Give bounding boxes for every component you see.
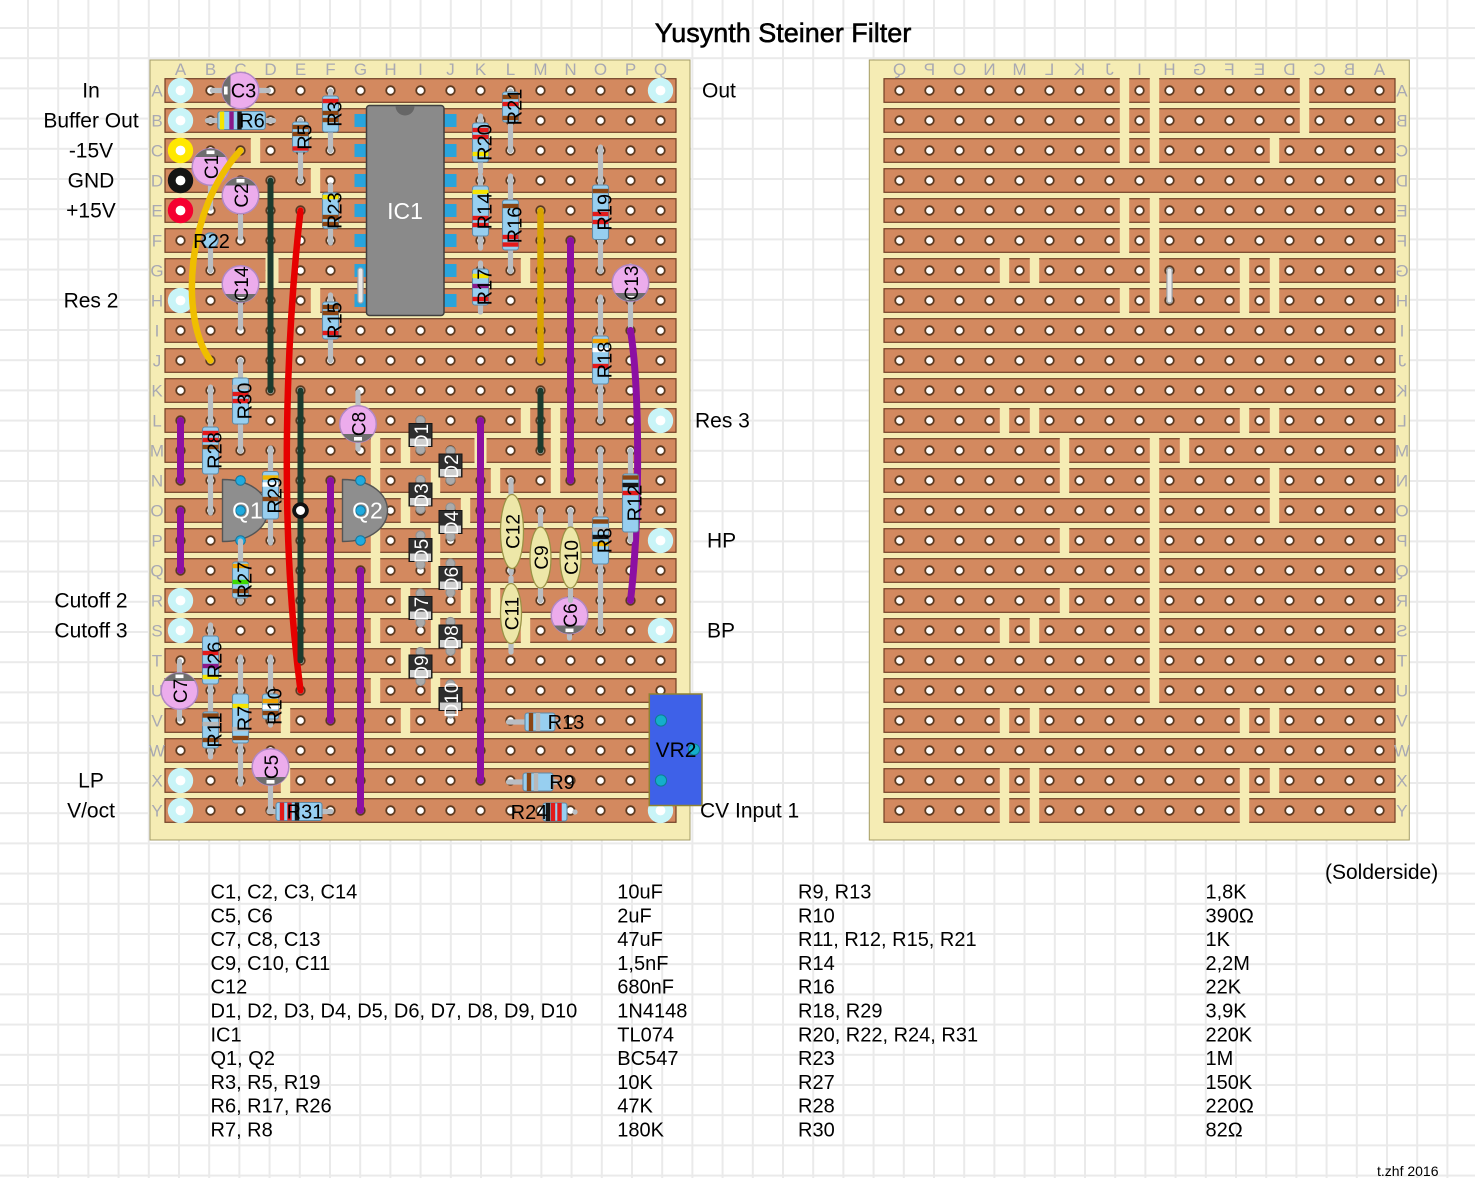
svg-text:Q1: Q1 xyxy=(232,498,263,524)
svg-text:R: R xyxy=(151,592,163,611)
svg-text:L: L xyxy=(1045,60,1054,79)
svg-text:C8: C8 xyxy=(350,412,371,436)
svg-text:C: C xyxy=(1313,60,1325,79)
svg-text:R14: R14 xyxy=(798,953,835,975)
svg-text:S: S xyxy=(151,622,162,641)
svg-text:R9: R9 xyxy=(549,772,575,794)
svg-text:F: F xyxy=(152,232,162,251)
svg-text:R9, R13: R9, R13 xyxy=(798,882,871,904)
svg-text:R3, R5, R19: R3, R5, R19 xyxy=(211,1072,321,1094)
svg-text:220K: 220K xyxy=(1206,1024,1253,1046)
svg-text:Cutoff 2: Cutoff 2 xyxy=(54,590,127,613)
svg-text:10K: 10K xyxy=(617,1072,653,1094)
svg-text:I: I xyxy=(418,60,423,79)
svg-text:X: X xyxy=(1396,772,1407,791)
svg-text:P: P xyxy=(151,532,162,551)
svg-text:R24: R24 xyxy=(511,802,548,824)
svg-text:2uF: 2uF xyxy=(617,905,651,927)
svg-text:A: A xyxy=(151,82,163,101)
svg-text:W: W xyxy=(1394,742,1410,761)
svg-text:2,2M: 2,2M xyxy=(1206,953,1250,975)
svg-text:R27: R27 xyxy=(235,562,257,599)
svg-text:R30: R30 xyxy=(798,1120,835,1142)
svg-text:82Ω: 82Ω xyxy=(1206,1120,1243,1142)
svg-text:N: N xyxy=(983,60,995,79)
svg-text:D6: D6 xyxy=(442,567,463,591)
svg-text:1,8K: 1,8K xyxy=(1206,882,1248,904)
svg-text:IC1: IC1 xyxy=(387,198,423,224)
svg-text:Buffer Out: Buffer Out xyxy=(43,110,138,133)
svg-text:R30: R30 xyxy=(235,383,257,420)
svg-text:H: H xyxy=(1163,60,1175,79)
svg-text:LP: LP xyxy=(78,770,104,793)
svg-text:E: E xyxy=(1396,202,1407,221)
svg-text:D1, D2, D3, D4, D5, D6, D7, D8: D1, D2, D3, D4, D5, D6, D7, D8, D9, D10 xyxy=(211,1001,578,1023)
svg-text:D: D xyxy=(264,60,276,79)
svg-text:N: N xyxy=(151,472,163,491)
svg-text:D3: D3 xyxy=(412,483,433,507)
svg-text:O: O xyxy=(594,60,607,79)
svg-text:D: D xyxy=(151,172,163,191)
svg-text:R29: R29 xyxy=(265,477,287,514)
svg-text:C2: C2 xyxy=(232,183,253,207)
svg-text:A: A xyxy=(1396,82,1408,101)
svg-text:R: R xyxy=(1396,592,1408,611)
svg-text:R27: R27 xyxy=(798,1072,835,1094)
svg-text:R5: R5 xyxy=(295,124,317,150)
svg-text:In: In xyxy=(82,80,100,103)
svg-text:G: G xyxy=(354,60,367,79)
svg-text:A: A xyxy=(1373,60,1385,79)
svg-text:10uF: 10uF xyxy=(617,882,663,904)
svg-text:150K: 150K xyxy=(1206,1072,1253,1094)
svg-text:Q: Q xyxy=(1395,562,1408,581)
svg-text:D4: D4 xyxy=(442,510,463,535)
svg-text:P: P xyxy=(625,60,636,79)
svg-text:S: S xyxy=(1396,622,1407,641)
svg-text:D5: D5 xyxy=(412,539,433,563)
svg-text:B: B xyxy=(205,60,216,79)
svg-text:C3: C3 xyxy=(231,81,257,103)
svg-text:C5: C5 xyxy=(262,755,283,779)
svg-text:C13: C13 xyxy=(622,266,643,301)
svg-text:C10: C10 xyxy=(562,540,583,575)
svg-text:R31: R31 xyxy=(287,802,324,824)
svg-text:t.zhf 2016: t.zhf 2016 xyxy=(1377,1163,1439,1178)
svg-text:BP: BP xyxy=(707,620,735,643)
svg-text:K: K xyxy=(475,60,487,79)
svg-text:J: J xyxy=(1398,352,1407,371)
svg-text:F: F xyxy=(1224,60,1234,79)
svg-text:C9: C9 xyxy=(532,545,553,569)
svg-text:(Solderside): (Solderside) xyxy=(1325,861,1438,884)
svg-text:C7: C7 xyxy=(171,679,192,703)
svg-text:E: E xyxy=(151,202,162,221)
svg-text:A: A xyxy=(175,60,187,79)
svg-text:H: H xyxy=(1396,292,1408,311)
svg-text:C1, C2, C3, C14: C1, C2, C3, C14 xyxy=(211,882,358,904)
svg-text:H: H xyxy=(151,292,163,311)
svg-text:G: G xyxy=(1193,60,1206,79)
svg-text:TL074: TL074 xyxy=(617,1024,674,1046)
svg-text:R22: R22 xyxy=(193,231,230,253)
svg-text:K: K xyxy=(1396,382,1408,401)
svg-text:47K: 47K xyxy=(617,1096,653,1118)
svg-text:W: W xyxy=(149,742,165,761)
svg-text:R23: R23 xyxy=(798,1048,835,1070)
svg-text:R28: R28 xyxy=(205,432,227,469)
svg-text:L: L xyxy=(1397,412,1406,431)
svg-text:M: M xyxy=(533,60,547,79)
svg-text:F: F xyxy=(1397,232,1407,251)
svg-text:I: I xyxy=(1137,60,1142,79)
svg-text:R18, R29: R18, R29 xyxy=(798,1001,883,1023)
svg-text:V/oct: V/oct xyxy=(67,800,115,823)
svg-text:C: C xyxy=(151,142,163,161)
svg-text:1K: 1K xyxy=(1206,929,1231,951)
svg-text:B: B xyxy=(1396,112,1407,131)
svg-text:T: T xyxy=(152,652,162,671)
svg-text:R7, R8: R7, R8 xyxy=(211,1120,273,1142)
svg-text:Q: Q xyxy=(150,562,163,581)
svg-text:K: K xyxy=(1073,60,1085,79)
svg-text:CV Input 1: CV Input 1 xyxy=(700,800,799,823)
svg-text:I: I xyxy=(155,322,160,341)
svg-text:C9, C10, C11: C9, C10, C11 xyxy=(211,953,331,975)
svg-text:R20: R20 xyxy=(475,124,497,161)
svg-text:Q: Q xyxy=(654,60,667,79)
svg-text:Cutoff 3: Cutoff 3 xyxy=(54,620,127,643)
svg-text:3,9K: 3,9K xyxy=(1206,1001,1248,1023)
svg-text:F: F xyxy=(325,60,335,79)
svg-text:R8: R8 xyxy=(595,528,617,554)
svg-text:V: V xyxy=(151,712,163,731)
svg-text:Res 2: Res 2 xyxy=(64,290,119,313)
svg-text:R7: R7 xyxy=(235,706,257,732)
svg-text:D1: D1 xyxy=(412,424,433,448)
svg-text:680nF: 680nF xyxy=(617,977,674,999)
svg-text:N: N xyxy=(1396,472,1408,491)
svg-text:T: T xyxy=(1397,652,1407,671)
svg-text:Y: Y xyxy=(151,802,162,821)
svg-text:R28: R28 xyxy=(798,1096,835,1118)
svg-text:R17: R17 xyxy=(475,269,497,306)
svg-text:1M: 1M xyxy=(1206,1048,1234,1070)
svg-text:R19: R19 xyxy=(595,194,617,231)
svg-text:E: E xyxy=(295,60,306,79)
svg-text:R18: R18 xyxy=(595,342,617,379)
svg-text:R20, R22, R24, R31: R20, R22, R24, R31 xyxy=(798,1024,978,1046)
svg-text:J: J xyxy=(153,352,162,371)
svg-text:C6: C6 xyxy=(561,603,582,627)
svg-text:H: H xyxy=(384,60,396,79)
svg-text:J: J xyxy=(1105,60,1114,79)
svg-text:C12: C12 xyxy=(211,977,248,999)
svg-text:D: D xyxy=(1283,60,1295,79)
svg-text:R3: R3 xyxy=(325,101,347,127)
svg-text:HP: HP xyxy=(707,530,736,553)
svg-text:Q1, Q2: Q1, Q2 xyxy=(211,1048,275,1070)
svg-text:R15: R15 xyxy=(325,302,347,339)
svg-text:1N4148: 1N4148 xyxy=(617,1001,687,1023)
svg-text:Q2: Q2 xyxy=(352,498,383,524)
svg-text:1,5nF: 1,5nF xyxy=(617,953,668,975)
svg-text:R10: R10 xyxy=(265,688,287,725)
svg-text:Res 3: Res 3 xyxy=(695,410,750,433)
svg-text:R6, R17, R26: R6, R17, R26 xyxy=(211,1096,332,1118)
svg-text:B: B xyxy=(1344,60,1355,79)
svg-text:N: N xyxy=(564,60,576,79)
svg-text:D: D xyxy=(1396,172,1408,191)
svg-text:R14: R14 xyxy=(475,193,497,230)
svg-text:L: L xyxy=(506,60,515,79)
svg-text:R10: R10 xyxy=(798,905,835,927)
svg-text:R6: R6 xyxy=(239,111,265,133)
svg-text:P: P xyxy=(1396,532,1407,551)
svg-text:R26: R26 xyxy=(205,642,227,679)
svg-text:220Ω: 220Ω xyxy=(1206,1096,1254,1118)
svg-text:B: B xyxy=(151,112,162,131)
svg-text:J: J xyxy=(446,60,455,79)
svg-text:R21: R21 xyxy=(505,89,527,126)
svg-text:Y: Y xyxy=(1396,802,1407,821)
svg-text:D9: D9 xyxy=(412,655,433,679)
svg-text:C: C xyxy=(1396,142,1408,161)
svg-text:D10: D10 xyxy=(442,683,463,718)
svg-text:IC1: IC1 xyxy=(211,1024,242,1046)
svg-text:M: M xyxy=(1012,60,1026,79)
svg-text:G: G xyxy=(150,262,163,281)
svg-text:M: M xyxy=(1395,442,1409,461)
svg-text:+15V: +15V xyxy=(66,200,116,223)
svg-text:180K: 180K xyxy=(617,1120,664,1142)
svg-text:P: P xyxy=(924,60,935,79)
svg-text:-15V: -15V xyxy=(69,140,113,163)
svg-text:E: E xyxy=(1254,60,1265,79)
svg-text:I: I xyxy=(1400,322,1405,341)
svg-text:R11, R12, R15, R21: R11, R12, R15, R21 xyxy=(798,929,977,951)
svg-text:390Ω: 390Ω xyxy=(1206,905,1254,927)
svg-text:X: X xyxy=(151,772,162,791)
svg-text:O: O xyxy=(1395,502,1408,521)
svg-text:C11: C11 xyxy=(503,597,524,630)
svg-text:G: G xyxy=(1395,262,1408,281)
svg-text:C14: C14 xyxy=(232,266,253,301)
svg-text:K: K xyxy=(151,382,163,401)
svg-text:R13: R13 xyxy=(548,712,585,734)
svg-text:O: O xyxy=(150,502,163,521)
svg-text:R23: R23 xyxy=(325,192,347,229)
svg-text:Q: Q xyxy=(893,60,906,79)
svg-text:L: L xyxy=(152,412,161,431)
svg-text:GND: GND xyxy=(68,170,115,193)
svg-text:V: V xyxy=(1396,712,1408,731)
svg-text:VR2: VR2 xyxy=(656,739,697,762)
svg-text:BC547: BC547 xyxy=(617,1048,678,1070)
svg-text:R12: R12 xyxy=(625,485,647,522)
svg-text:D7: D7 xyxy=(412,597,433,621)
svg-text:O: O xyxy=(953,60,966,79)
svg-text:C12: C12 xyxy=(504,514,525,549)
svg-text:U: U xyxy=(1396,682,1408,701)
svg-text:Out: Out xyxy=(702,80,736,103)
svg-text:Yusynth Steiner Filter: Yusynth Steiner Filter xyxy=(655,18,912,48)
svg-text:C5, C6: C5, C6 xyxy=(211,905,273,927)
svg-text:R11: R11 xyxy=(205,712,227,747)
svg-text:R16: R16 xyxy=(505,207,527,244)
svg-text:D2: D2 xyxy=(442,454,463,478)
svg-text:47uF: 47uF xyxy=(617,929,663,951)
svg-text:R16: R16 xyxy=(798,977,835,999)
svg-text:C7, C8, C13: C7, C8, C13 xyxy=(211,929,321,951)
svg-text:M: M xyxy=(150,442,164,461)
svg-text:22K: 22K xyxy=(1206,977,1242,999)
svg-text:D8: D8 xyxy=(442,625,463,649)
